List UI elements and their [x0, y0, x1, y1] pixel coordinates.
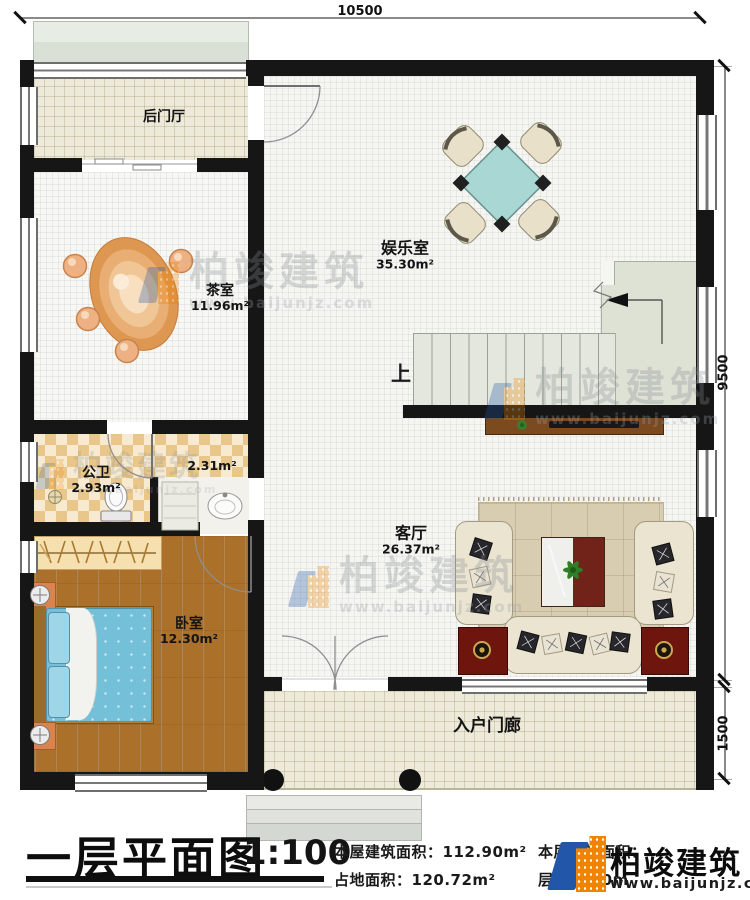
door-back-hall	[264, 86, 320, 142]
vanity-shelf	[162, 482, 198, 530]
tv-icon	[517, 420, 639, 430]
stat-land-area: 占地面积：120.72m²	[334, 869, 496, 890]
room-label-tea-room: 茶室 11.96m²	[191, 283, 249, 313]
sliding-door	[82, 159, 197, 170]
room-label-bedroom: 卧室 12.30m²	[160, 616, 218, 646]
door-bedroom	[195, 536, 251, 592]
brand-logo-icon	[552, 832, 612, 894]
game-chair	[517, 119, 565, 167]
room-label-entry-porch: 入户门廊	[453, 717, 521, 737]
stair-direction-arrow	[594, 282, 662, 344]
room-label-back-hall: 后门厅	[143, 109, 185, 125]
sofa-pillows	[469, 538, 674, 655]
title-underline-thin	[26, 886, 332, 888]
door-entry-double	[282, 636, 388, 690]
brand-url: www.baijunjz.com	[610, 876, 750, 892]
sink-icon	[208, 493, 242, 519]
wardrobe-hangers	[38, 541, 156, 563]
room-label-vanity: 2.31m²	[187, 459, 236, 473]
room-label-entertainment: 娱乐室 35.30m²	[376, 240, 434, 273]
plan-detail-overlay	[0, 0, 750, 900]
plant-icon	[549, 545, 583, 597]
room-label-living-room: 客厅 26.37m²	[382, 525, 440, 558]
stairs-up-label: 上	[391, 363, 411, 386]
stat-building-area: 本屋建筑面积：112.90m²	[334, 841, 527, 862]
room-label-bathroom: 公卫 2.93m²	[71, 465, 120, 495]
floor-plan-canvas: 10500 9500 1500	[0, 0, 750, 900]
floor-drain-icon	[49, 470, 62, 504]
lamp-icon	[31, 586, 50, 745]
title-underline	[26, 876, 324, 882]
